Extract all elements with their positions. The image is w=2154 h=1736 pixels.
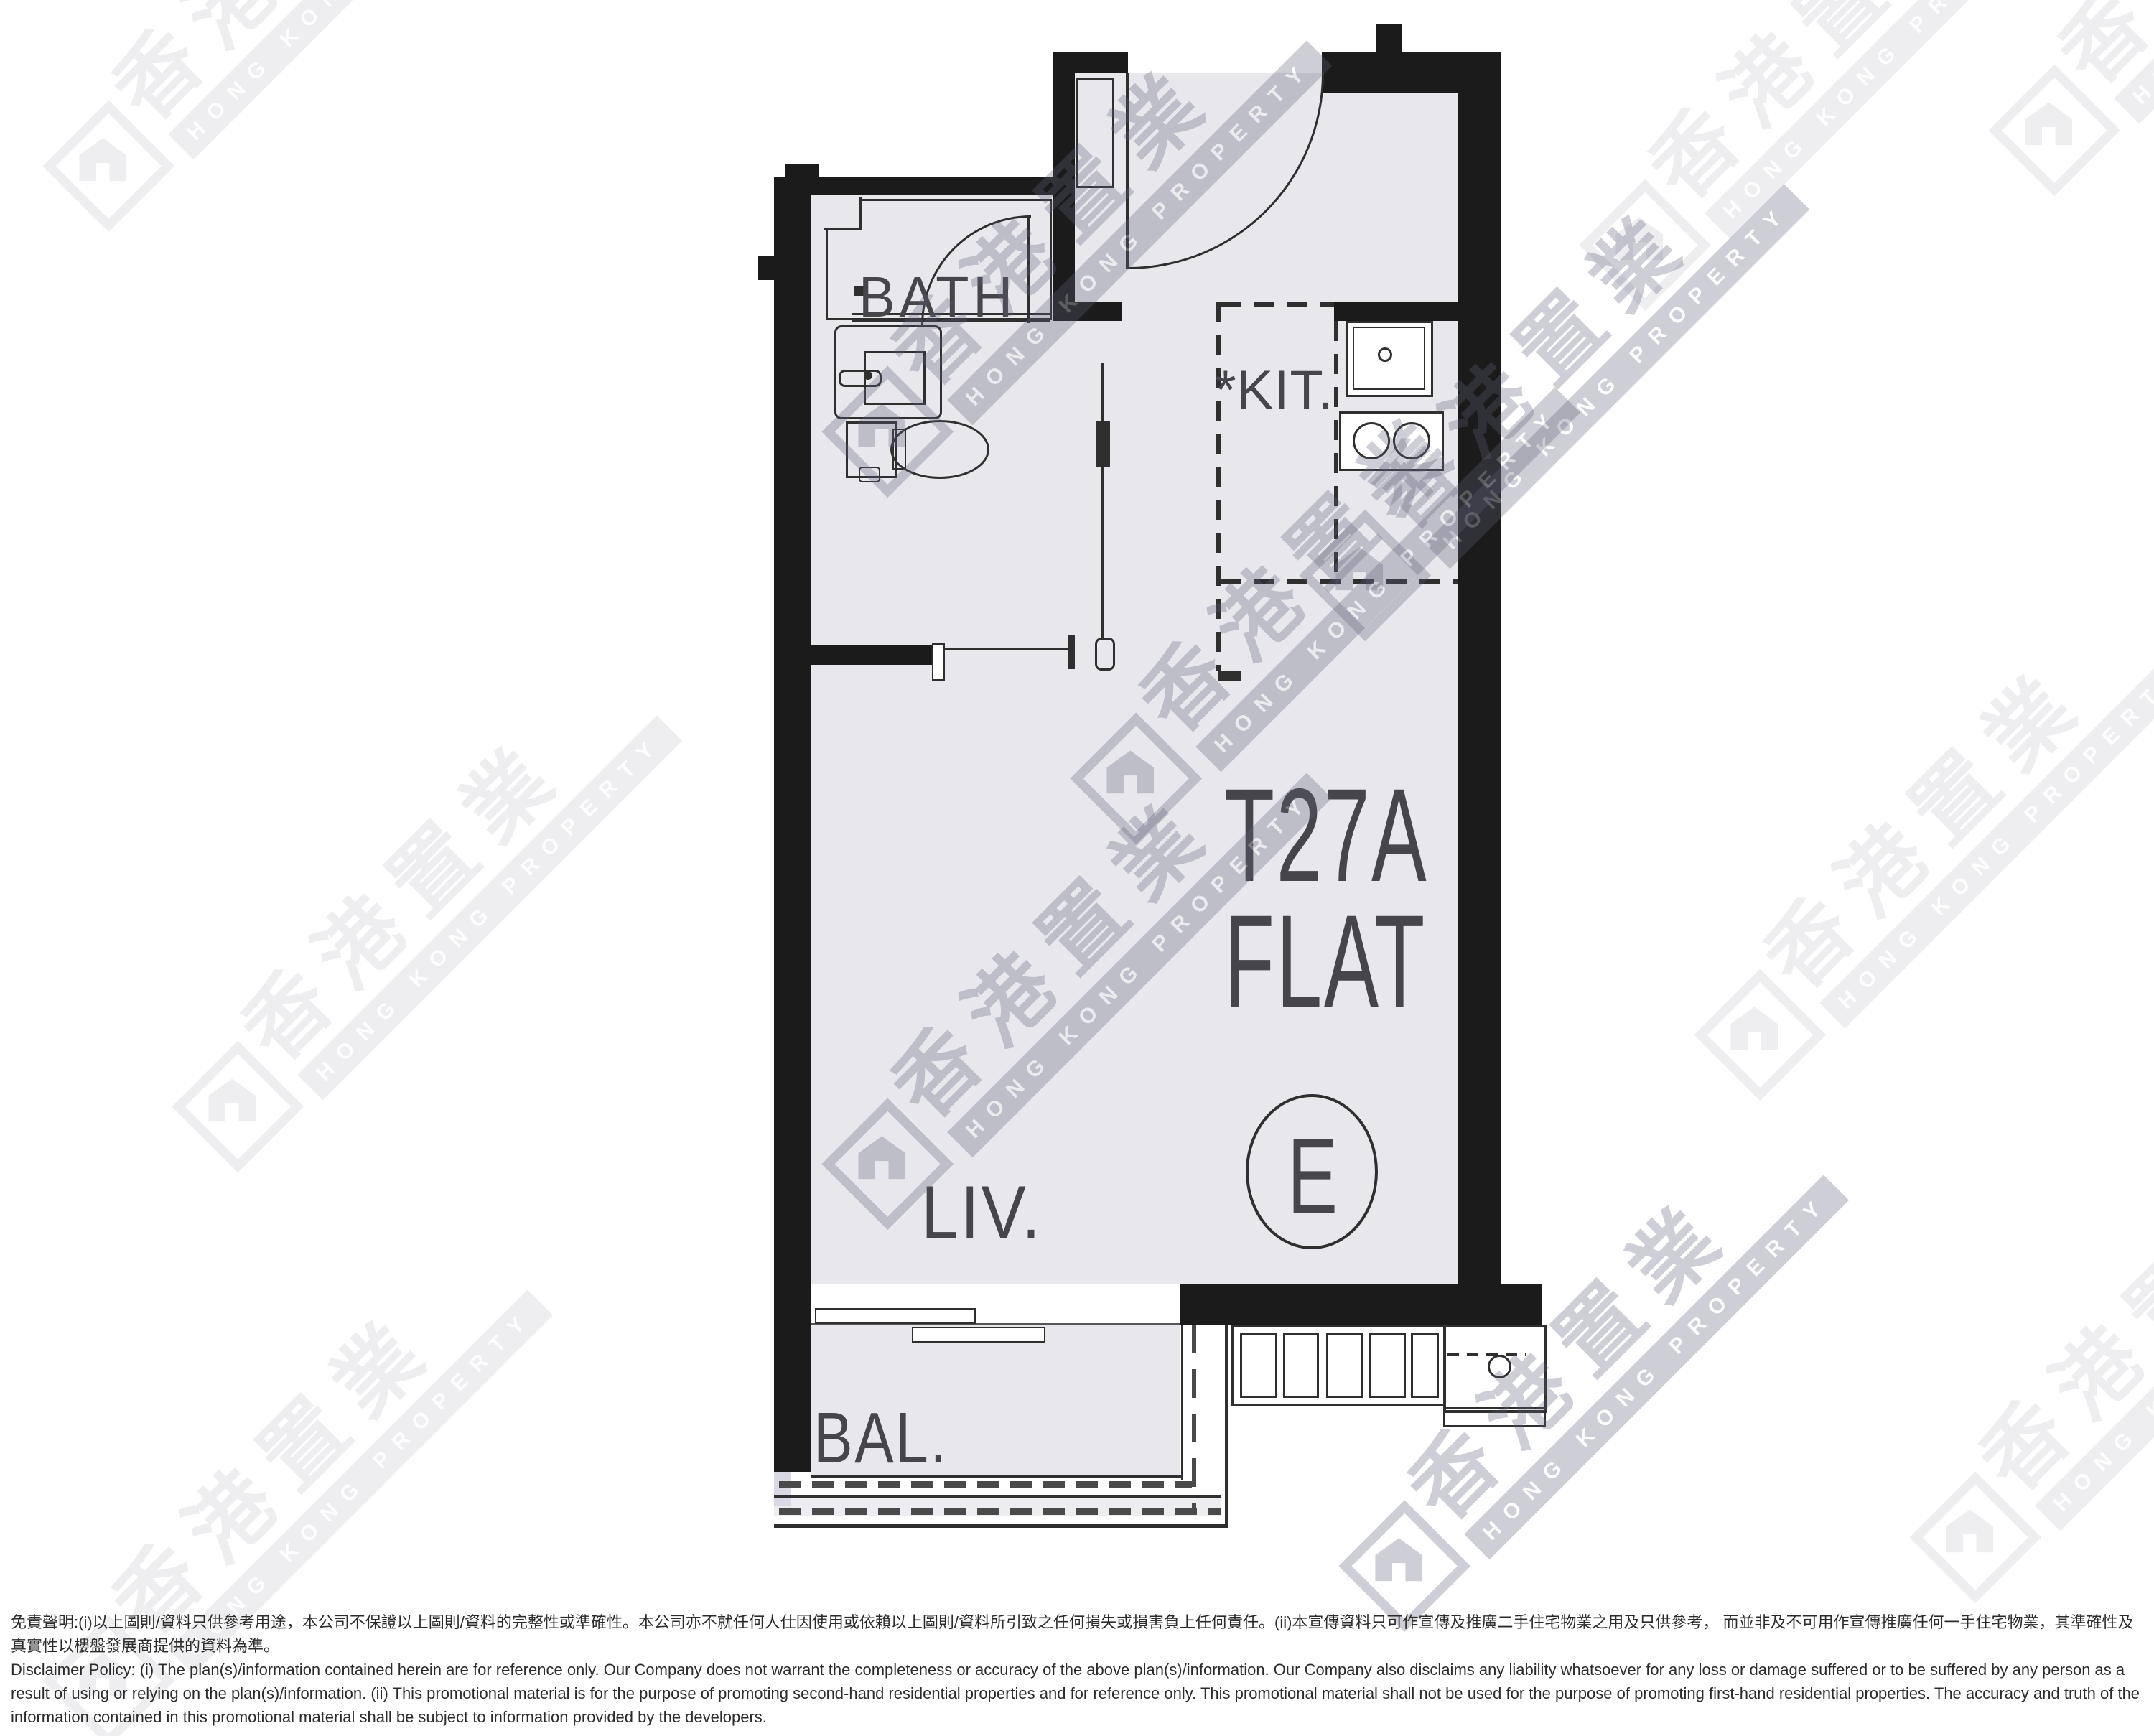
- wall-left: [774, 177, 811, 1472]
- watermark-brand: 香港置業: [99, 1226, 523, 1649]
- watermark-brand-en: HONG KONG PROPERTY: [2049, 1160, 2154, 1516]
- disclaimer-block: 免責聲明:(i)以上圖則/資料只供參考用途，本公司不保證以上圖則/資料的完整性或…: [11, 1610, 2147, 1729]
- ac-louver-1: [1240, 1333, 1277, 1398]
- balcony-inner-edge-bottom: [811, 1475, 1183, 1478]
- partition-line: [1101, 363, 1104, 638]
- toilet-flush-button: [859, 467, 880, 482]
- ac-louver-5: [1411, 1333, 1439, 1398]
- hkp-logo-icon: [1926, 1488, 2012, 1574]
- bath-label: BATH: [859, 264, 1017, 330]
- hkp-logo-icon: [1355, 1516, 1441, 1602]
- entry-closet: [1076, 78, 1114, 188]
- balcony-outer-edge-bottom: [774, 1524, 1228, 1528]
- kitchen-dash-left: [1216, 302, 1221, 671]
- watermark-brand: 香港置業: [1966, 1082, 2154, 1506]
- bath-shower-notch: [824, 197, 862, 230]
- watermark: 香港置業 HONG KONG PROPERTY: [0, 0, 472, 235]
- fridge-knob: [1378, 347, 1392, 362]
- disclaimer-zh: 免責聲明:(i)以上圖則/資料只供參考用途，本公司不保證以上圖則/資料的完整性或…: [11, 1610, 2147, 1658]
- watermark-brand: 香港置業: [1636, 0, 2059, 213]
- balcony-outer-edge-right: [1225, 1325, 1228, 1528]
- flat-letter: E: [1287, 1114, 1338, 1238]
- sliding-door-leaf-1: [815, 1308, 976, 1324]
- watermark: 香港置業 HONG KONG PROPERTY: [1637, 617, 2125, 1105]
- wall-left-bump: [758, 256, 774, 280]
- watermark-ribbon: HONG KONG PROPERTY: [2114, 0, 2154, 123]
- wall-entry-column-cap: [1053, 302, 1122, 321]
- wall-bath-bottom: [811, 645, 932, 665]
- partition-end-capsule: [1095, 638, 1115, 671]
- watermark: 香港置業 HONG KONG PROPERTY: [1931, 0, 2154, 200]
- watermark-brand-en: HONG KONG PROPERTY: [1834, 658, 2154, 1013]
- kitchen-dash-bottom: [1221, 579, 1458, 584]
- wall-bottom: [1180, 1284, 1542, 1325]
- balcony-dash-bottom-1: [779, 1481, 1192, 1488]
- watermark-ribbon: HONG KONG PROPERTY: [2035, 1147, 2154, 1531]
- wall-right: [1458, 52, 1501, 1325]
- wall-entry-column: [1053, 52, 1075, 321]
- sliding-door-leaf-2: [912, 1327, 1045, 1343]
- watermark: 香港置業 HONG KONG PROPERTY: [1852, 1120, 2154, 1607]
- floor-corridor: [1075, 73, 1128, 1284]
- balcony-dash-bottom-2: [779, 1508, 1221, 1515]
- watermark-ribbon: HONG KONG PROPERTY: [297, 716, 682, 1101]
- wall-kitchen-bar: [1334, 302, 1458, 321]
- watermark-ribbon: HONG KONG PROPERTY: [168, 0, 553, 159]
- watermark-brand: 香港置業: [228, 651, 652, 1075]
- disclaimer-en: Disclaimer Policy: (i) The plan(s)/infor…: [11, 1658, 2147, 1729]
- watermark-brand: 香港置業: [99, 0, 523, 134]
- balcony-inner-edge-right: [1181, 1325, 1183, 1480]
- flat-label: FLAT: [1224, 886, 1427, 1038]
- hkp-logo-icon: [188, 1057, 274, 1143]
- ac-louver-3: [1326, 1333, 1363, 1398]
- ac-drain-circle: [1488, 1355, 1511, 1378]
- balcony-corner-tint: [774, 1472, 791, 1506]
- bath-faucet-dot: [864, 371, 872, 380]
- balcony-dash-right: [1192, 1325, 1196, 1508]
- ac-box-dash: [1447, 1353, 1526, 1356]
- hkp-logo-icon: [2005, 80, 2091, 167]
- watermark-ribbon: HONG KONG PROPERTY: [1819, 644, 2154, 1029]
- partition-thick-segment: [1096, 421, 1110, 467]
- stove-burner-left: [1353, 422, 1390, 459]
- watermark-brand-en: HONG KONG PROPERTY: [182, 1304, 538, 1659]
- ac-louver-2: [1283, 1333, 1319, 1398]
- watermark: 香港置業 HONG KONG PROPERTY: [1522, 0, 2010, 314]
- watermark-brand-en: HONG KONG PROPERTY: [2128, 0, 2154, 109]
- watermark-brand: 香港置業: [2045, 0, 2154, 98]
- floor-plan-page: BATH *KIT. T27A FLAT E LIV. BAL. 香港置業 HO…: [0, 0, 2154, 1736]
- bath-faucet: [839, 370, 882, 387]
- kitchen-dash-top: [1221, 302, 1334, 307]
- watermark-brand: 香港置業: [1750, 579, 2154, 1003]
- hkp-logo-icon: [1595, 195, 1682, 281]
- stove-burner-right: [1393, 422, 1430, 459]
- balcony-line-bottom-2: [774, 1495, 1221, 1498]
- ac-louver-4: [1369, 1333, 1406, 1398]
- vanity-end-stub: [1068, 635, 1075, 669]
- wall-top-stub: [1376, 24, 1402, 54]
- watermark-brand-en: HONG KONG PROPERTY: [1719, 0, 2074, 224]
- kitchen-dash-corner-tick: [1218, 671, 1241, 681]
- living-label: LIV.: [921, 1170, 1043, 1256]
- kitchen-dash-mid: [1334, 321, 1338, 579]
- hkp-logo-icon: [1710, 985, 1796, 1071]
- hkp-logo-icon: [59, 116, 145, 202]
- ac-box-lip: [1443, 1407, 1546, 1427]
- watermark: 香港置業 HONG KONG PROPERTY: [115, 689, 602, 1177]
- vanity-line: [945, 648, 1071, 650]
- wall-bath-bottom-endcap: [932, 643, 945, 681]
- toilet-bowl: [890, 420, 989, 479]
- watermark-brand-en: HONG KONG PROPERTY: [312, 729, 667, 1085]
- kitchen-label: *KIT.: [1215, 359, 1334, 421]
- watermark-brand-en: HONG KONG PROPERTY: [182, 0, 538, 145]
- watermark-ribbon: HONG KONG PROPERTY: [1705, 0, 2089, 238]
- balcony-label: BAL.: [813, 1397, 948, 1480]
- wall-bath-top: [790, 177, 1053, 195]
